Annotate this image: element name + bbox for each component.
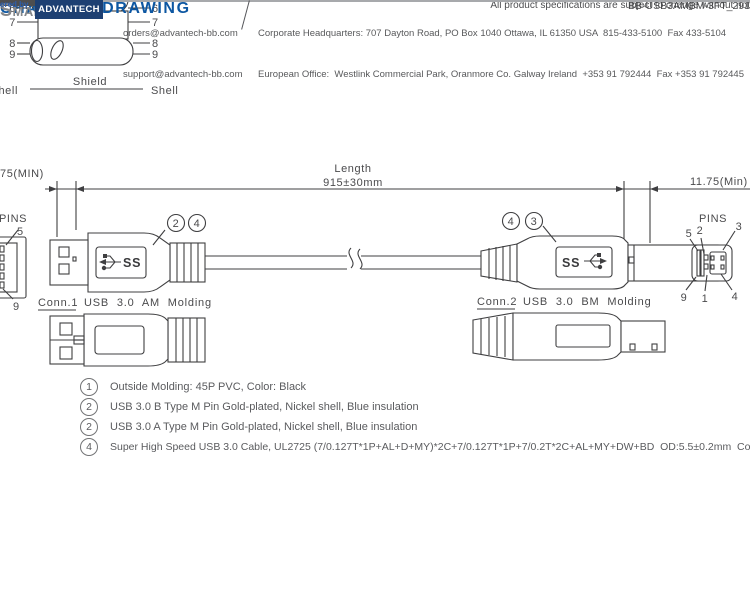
dim-length-label: Length (334, 163, 371, 175)
note-text: USB 3.0 A Type M Pin Gold-plated, Nickel… (110, 418, 417, 436)
note-number-badge: 4 (80, 438, 98, 456)
conn2-top-molding (513, 313, 621, 360)
conn1-strain-relief (170, 243, 205, 282)
conn1-top-molding (84, 314, 168, 366)
conn1-top-view (50, 314, 205, 366)
conn2-pins-label: PINS (699, 213, 727, 225)
conn2-pin-2: 2 (697, 225, 704, 237)
conn1-pin-bottom: 9 (13, 301, 20, 313)
shield-label: Shield (73, 76, 107, 88)
conn2-pin-3: 3 (736, 221, 743, 233)
datasheet-page: 6 7 8 9 6 7 8 9 hell Shield Shell 75(MIN… (0, 0, 750, 591)
conn2-callout-b: 3 (531, 216, 538, 228)
support-email: support@advantech-bb.com (123, 68, 243, 82)
dim-length-value: 915±30mm (323, 177, 383, 189)
company-addresses: Corporate Headquarters: 707 Dayton Road,… (258, 0, 744, 108)
conn2-callout-a: 4 (508, 216, 515, 228)
cable (205, 248, 482, 269)
conn1-desc: USB 3.0 AM Molding (84, 297, 212, 309)
note-text: USB 3.0 B Type M Pin Gold-plated, Nickel… (110, 398, 419, 416)
orders-email: orders@advantech-bb.com (123, 27, 243, 41)
conn1-side-view: SS 2 4 Conn.1 USB 3.0 AM Molding (38, 215, 212, 311)
conn2-top-strain-relief (473, 313, 513, 360)
note-number-badge: 2 (80, 418, 98, 436)
conn1-callout-a: 2 (173, 218, 180, 230)
eu-address: European Office: Westlink Commercial Par… (258, 68, 744, 82)
wire-pin-left-9: 9 (9, 49, 16, 61)
dimension-lines: 75(MIN) Length 915±30mm 11.75(Min) (0, 163, 750, 243)
conn2-pin-9: 9 (681, 292, 688, 304)
conn1-pin-top: 5 (17, 226, 24, 238)
note-text: Outside Molding: 45P PVC, Color: Black (110, 378, 306, 396)
dim-left-min: 75(MIN) (0, 168, 44, 180)
conn1-ss-logo-text: SS (123, 256, 141, 270)
conn2-pin-5: 5 (686, 228, 693, 240)
advantech-logo: ADVANTECH (35, 0, 103, 19)
conn2-pin-1: 1 (702, 293, 709, 305)
conn1-top-strain-relief (168, 318, 205, 362)
conn2-top-view (473, 313, 665, 360)
conn2-desc: USB 3.0 BM Molding (523, 296, 652, 308)
conn2-pin-4: 4 (732, 291, 739, 303)
conn1-name: Conn.1 (38, 297, 78, 309)
conn2-ss-logo-text: SS (562, 256, 580, 270)
conn1-pins-face: PINS 5 9 (0, 213, 27, 313)
dim-right-min: 11.75(Min) (690, 176, 748, 188)
note-text: Super High Speed USB 3.0 Cable, UL2725 (… (110, 438, 750, 456)
shell-label-left: hell (0, 85, 18, 97)
conn2-top-shell (621, 321, 665, 352)
hq-address: Corporate Headquarters: 707 Dayton Road,… (258, 27, 744, 41)
contact-emails: orders@advantech-bb.com support@advantec… (123, 0, 243, 108)
note-number-badge: 1 (80, 378, 98, 396)
conn1-callout-b: 4 (194, 218, 201, 230)
conn1-pins-label: PINS (0, 213, 27, 225)
conn2-strain-relief (481, 244, 517, 282)
note-number-badge: 2 (80, 398, 98, 416)
twisted-pair-tube-bottom (30, 38, 133, 65)
powered-by-label: ered by (0, 0, 28, 9)
cable-break-icon (349, 248, 353, 268)
conn2-name: Conn.2 (477, 296, 517, 308)
